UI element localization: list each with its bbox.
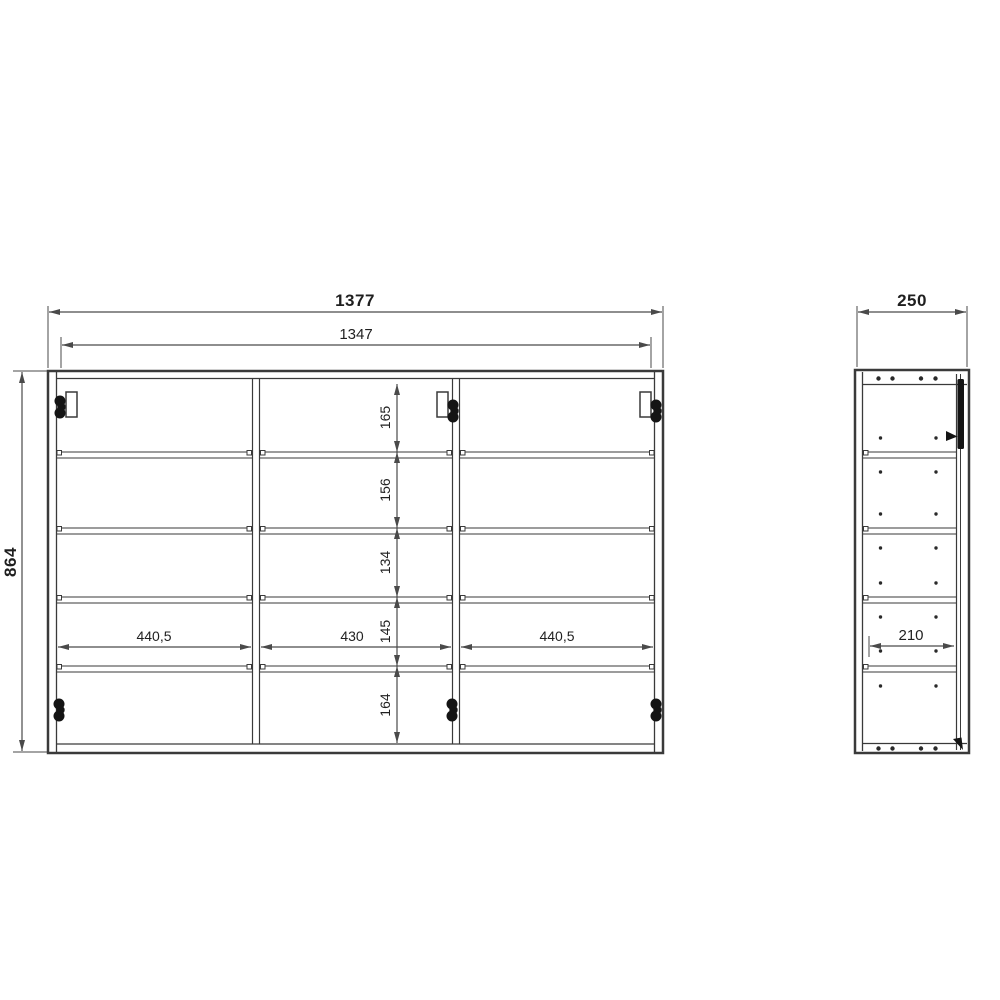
wall-bracket-icon — [958, 379, 965, 449]
hinge-plate-icon — [437, 392, 448, 417]
row-height-label: 134 — [377, 551, 393, 575]
column-width-label: 440,5 — [539, 628, 574, 644]
front-outline — [48, 371, 663, 753]
row-height-label: 165 — [377, 406, 393, 430]
hinge-plate-icon — [66, 392, 77, 417]
row-height-label: 164 — [377, 693, 393, 717]
front-inner-width-label: 1347 — [339, 326, 372, 343]
side-outline — [855, 370, 969, 753]
front-view: 1377 1347 864 165 156 134 145 164 — [1, 291, 663, 753]
side-depth-label: 250 — [897, 291, 927, 310]
side-view: 250 210 — [855, 291, 969, 753]
column-width-label: 430 — [340, 628, 364, 644]
row-height-label: 156 — [377, 478, 393, 502]
hinge-plate-icon — [640, 392, 651, 417]
row-height-label: 145 — [377, 620, 393, 644]
column-width-label: 440,5 — [136, 628, 171, 644]
side-carcass-lines — [855, 370, 969, 753]
side-inner-depth-label: 210 — [898, 627, 923, 644]
cabinet-dimension-drawing: 1377 1347 864 165 156 134 145 164 — [0, 0, 1000, 1000]
front-overall-height-label: 864 — [1, 547, 20, 577]
drawing-page: 1377 1347 864 165 156 134 145 164 — [0, 0, 1000, 1000]
front-overall-width-label: 1377 — [335, 291, 375, 310]
front-carcass-lines — [48, 371, 663, 753]
